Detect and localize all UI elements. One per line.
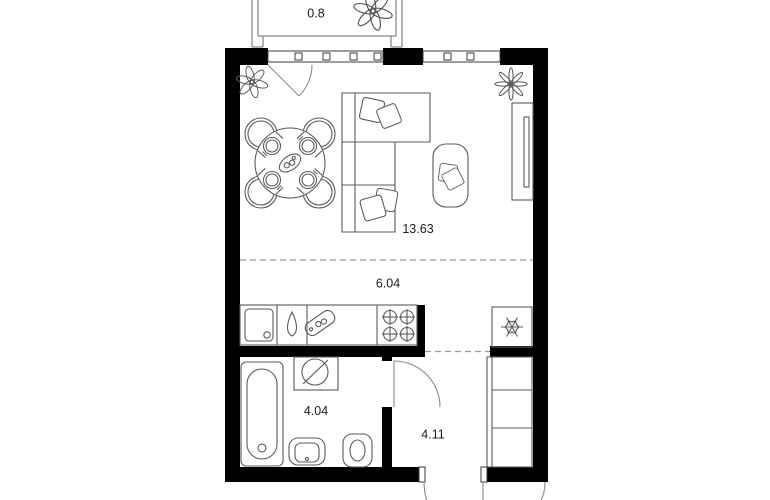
bathroom: 4.04 xyxy=(241,357,372,467)
balcony-door xyxy=(268,65,312,96)
toilet xyxy=(343,434,372,467)
wall-top-seg2 xyxy=(383,48,423,65)
bathroom-door xyxy=(394,361,440,407)
wall-bottom-seg2 xyxy=(487,467,548,482)
refrigerator xyxy=(492,307,532,347)
washing-machine-icon xyxy=(294,357,338,390)
wall-right xyxy=(533,48,548,482)
entrance-door-arc xyxy=(424,482,484,500)
window-mullion xyxy=(444,53,451,60)
window-mullion xyxy=(295,53,302,60)
plant-icon xyxy=(353,0,393,31)
sofa xyxy=(342,93,430,232)
balcony-door-leaf xyxy=(268,65,299,96)
wardrobe xyxy=(487,357,532,467)
living-room: 13.63 xyxy=(235,65,533,236)
wall-bathroom-top xyxy=(240,346,424,357)
window-mullion xyxy=(350,53,357,60)
plant-icon xyxy=(235,65,268,98)
hallway: 4.11 xyxy=(421,357,532,467)
snowflake-icon xyxy=(501,316,523,338)
living-room-area-label: 13.63 xyxy=(402,222,433,236)
plant-icon xyxy=(495,68,527,100)
wardrobe-outline xyxy=(487,357,532,467)
bathroom-door-arc xyxy=(394,361,440,407)
window-mullion xyxy=(467,53,474,60)
tv-screen xyxy=(524,117,529,187)
wall-top-seg3 xyxy=(500,48,548,65)
dining-table-group xyxy=(245,118,335,208)
wall-top-seg1 xyxy=(225,48,268,65)
wall-bath-hall-top xyxy=(382,346,392,361)
wash-basin xyxy=(289,438,325,465)
ottoman xyxy=(433,144,468,207)
entrance-door-jamb xyxy=(419,467,425,482)
entrance-door-jamb xyxy=(481,467,487,482)
tv-cabinet-outline xyxy=(512,103,533,200)
neighbor-door-arc xyxy=(541,482,545,500)
window-mullion xyxy=(374,53,381,60)
wall-bath-hall-bottom xyxy=(382,407,392,467)
floorplan-drawing: 0.8 xyxy=(0,0,770,500)
window-2 xyxy=(423,51,500,62)
kitchen: 6.04 xyxy=(240,277,532,348)
balcony-door-arc xyxy=(299,65,312,96)
tv-cabinet xyxy=(512,103,533,200)
floorplan: 0.8 xyxy=(0,0,770,500)
wall-under-fridge xyxy=(490,346,548,357)
wall-left xyxy=(225,48,240,482)
balcony-area-label: 0.8 xyxy=(307,7,324,21)
wall-kitchen-stub xyxy=(417,305,425,357)
balcony: 0.8 xyxy=(252,0,402,47)
bathroom-area-label: 4.04 xyxy=(304,404,328,418)
wall-bottom-seg1 xyxy=(225,467,419,482)
window-mullion xyxy=(323,53,330,60)
hallway-area-label: 4.11 xyxy=(421,428,444,442)
kitchen-area-label: 6.04 xyxy=(376,277,400,291)
bathtub xyxy=(241,362,283,466)
